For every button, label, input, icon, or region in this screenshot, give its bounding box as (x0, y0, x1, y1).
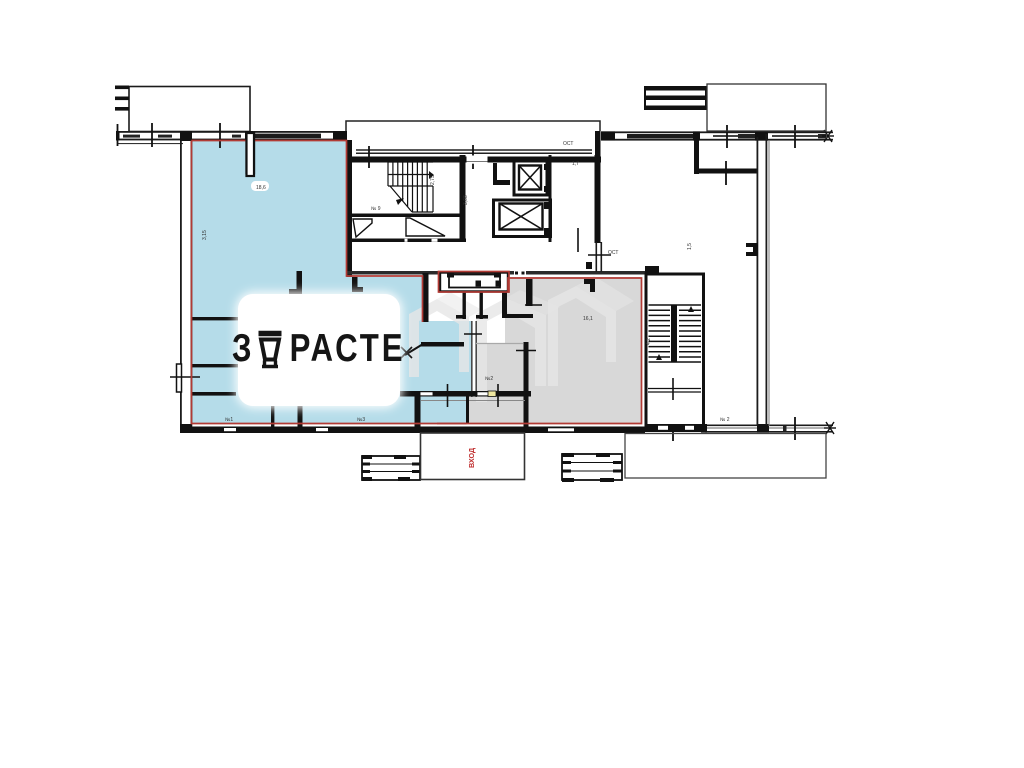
svg-text:№ 2: № 2 (720, 417, 730, 423)
svg-text:№1: №1 (225, 417, 233, 423)
svg-text:З: З (232, 327, 252, 370)
svg-text:ОСТ: ОСТ (563, 141, 573, 147)
svg-text:№3: №3 (357, 417, 365, 423)
svg-text:№2: №2 (485, 376, 493, 382)
svg-text:3,08: 3,08 (463, 195, 469, 205)
svg-text:4,2: 4,2 (646, 338, 652, 345)
svg-text:1,7: 1,7 (572, 161, 579, 167)
svg-text:№ 9: № 9 (371, 206, 381, 212)
svg-text:РАСТЕ: РАСТЕ (290, 327, 406, 370)
svg-text:1,5: 1,5 (687, 243, 693, 250)
svg-text:3,15: 3,15 (202, 230, 208, 240)
svg-text:ВХОД: ВХОД (467, 448, 476, 468)
svg-text:16,1: 16,1 (583, 316, 593, 322)
svg-text:18,6: 18,6 (256, 185, 266, 191)
svg-text:2,75: 2,75 (430, 175, 436, 185)
svg-text:ОСТ: ОСТ (608, 250, 618, 256)
